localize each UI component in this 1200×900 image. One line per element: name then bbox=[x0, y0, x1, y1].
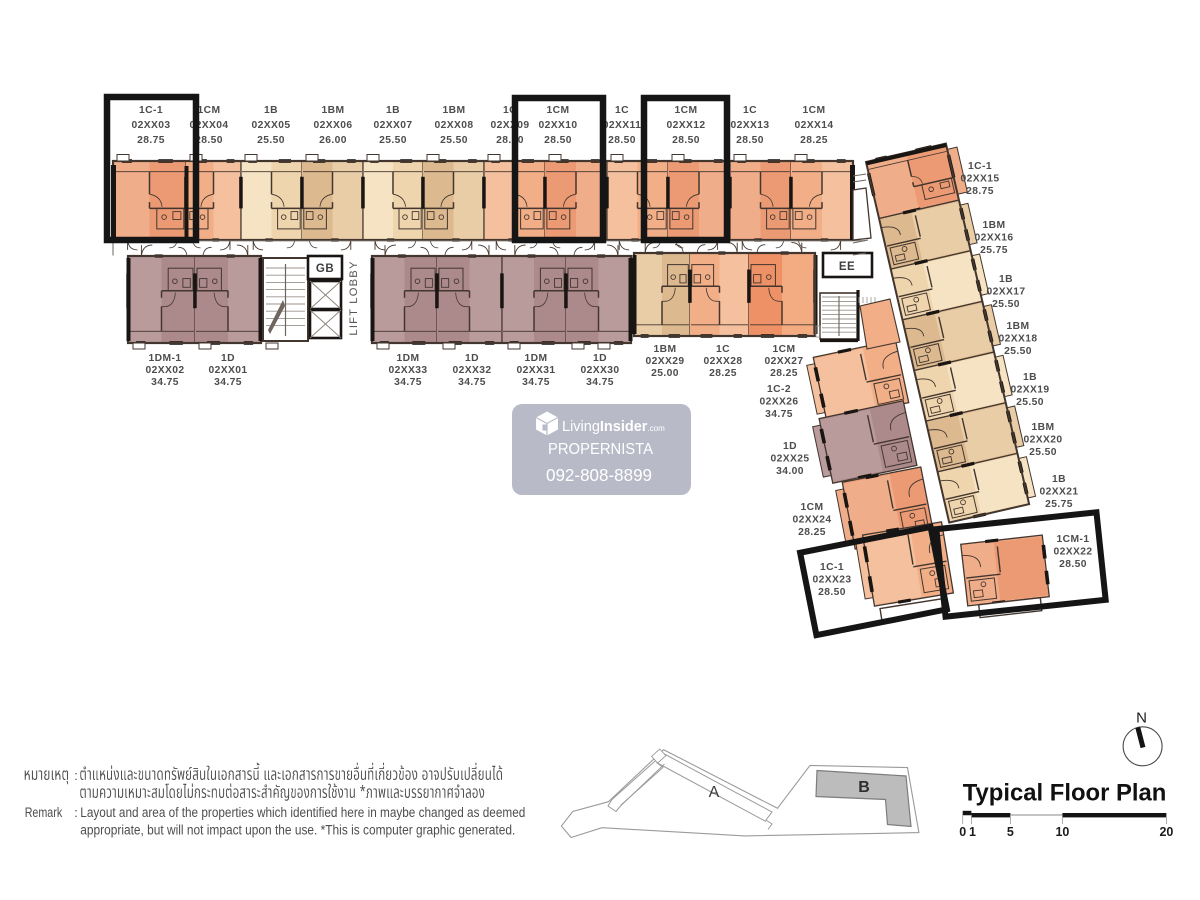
svg-text:1CM: 1CM bbox=[675, 105, 698, 116]
svg-text:25.00: 25.00 bbox=[651, 368, 679, 379]
svg-text:1D: 1D bbox=[221, 353, 235, 364]
svg-text::: : bbox=[74, 768, 78, 783]
svg-text:02XX29: 02XX29 bbox=[645, 356, 684, 367]
svg-text:1BM: 1BM bbox=[1032, 422, 1055, 433]
svg-text:02XX02: 02XX02 bbox=[145, 365, 184, 376]
svg-text:02XX22: 02XX22 bbox=[1053, 547, 1092, 558]
svg-text:02XX09: 02XX09 bbox=[490, 120, 529, 131]
svg-text:GB: GB bbox=[316, 263, 334, 275]
svg-text:34.75: 34.75 bbox=[151, 377, 179, 388]
svg-text:PROPERNISTA: PROPERNISTA bbox=[548, 441, 654, 458]
svg-text:5: 5 bbox=[1007, 825, 1014, 839]
svg-text:02XX15: 02XX15 bbox=[960, 174, 999, 185]
svg-text:34.75: 34.75 bbox=[214, 377, 242, 388]
svg-text:1CM: 1CM bbox=[773, 344, 796, 355]
svg-text:Layout and area of the propert: Layout and area of the properties which … bbox=[80, 805, 525, 820]
svg-text:28.50: 28.50 bbox=[1059, 559, 1087, 570]
svg-text:02XX17: 02XX17 bbox=[986, 287, 1025, 298]
svg-text:1: 1 bbox=[969, 825, 976, 839]
svg-text:34.75: 34.75 bbox=[586, 377, 614, 388]
svg-text:1CM-1: 1CM-1 bbox=[1057, 534, 1090, 545]
svg-text:1BM: 1BM bbox=[983, 220, 1006, 231]
svg-text:28.75: 28.75 bbox=[966, 186, 994, 197]
svg-text:1DM-1: 1DM-1 bbox=[149, 353, 182, 364]
svg-text:28.50: 28.50 bbox=[736, 135, 764, 146]
svg-text:02XX01: 02XX01 bbox=[208, 365, 247, 376]
svg-text:02XX24: 02XX24 bbox=[792, 515, 831, 526]
svg-text:1CM: 1CM bbox=[801, 502, 824, 513]
svg-text:1C-1: 1C-1 bbox=[968, 161, 992, 172]
svg-text:02XX33: 02XX33 bbox=[388, 365, 427, 376]
svg-text:25.50: 25.50 bbox=[1029, 447, 1057, 458]
svg-text:1C-2: 1C-2 bbox=[767, 384, 791, 395]
svg-text:02XX26: 02XX26 bbox=[759, 397, 798, 408]
svg-text:1BM: 1BM bbox=[322, 105, 345, 116]
svg-text:25.75: 25.75 bbox=[1045, 499, 1073, 510]
svg-text:02XX18: 02XX18 bbox=[998, 334, 1037, 345]
svg-text:1BM: 1BM bbox=[1007, 321, 1030, 332]
svg-text:1C: 1C bbox=[743, 105, 757, 116]
svg-text:02XX06: 02XX06 bbox=[313, 120, 352, 131]
svg-text:02XX13: 02XX13 bbox=[730, 120, 769, 131]
svg-text:1C-1: 1C-1 bbox=[820, 562, 844, 573]
svg-text:LIFT LOBBY: LIFT LOBBY bbox=[348, 260, 360, 335]
svg-text:1D: 1D bbox=[593, 353, 607, 364]
svg-text:02XX16: 02XX16 bbox=[974, 233, 1013, 244]
svg-text:25.50: 25.50 bbox=[1016, 397, 1044, 408]
svg-text:Typical Floor Plan: Typical Floor Plan bbox=[963, 780, 1167, 807]
svg-text:02XX12: 02XX12 bbox=[666, 120, 705, 131]
svg-text:0: 0 bbox=[959, 825, 966, 839]
svg-text:28.75: 28.75 bbox=[137, 135, 165, 146]
svg-text:28.50: 28.50 bbox=[496, 135, 524, 146]
svg-text:28.50: 28.50 bbox=[544, 135, 572, 146]
svg-text:B: B bbox=[858, 779, 870, 796]
svg-text:1BM: 1BM bbox=[654, 344, 677, 355]
svg-text:28.50: 28.50 bbox=[818, 587, 846, 598]
svg-text:1CM: 1CM bbox=[198, 105, 221, 116]
svg-text:1DM: 1DM bbox=[397, 353, 420, 364]
svg-text:25.75: 25.75 bbox=[980, 245, 1008, 256]
svg-text:1CM: 1CM bbox=[803, 105, 826, 116]
svg-text:34.75: 34.75 bbox=[458, 377, 486, 388]
svg-text:34.00: 34.00 bbox=[776, 466, 804, 477]
svg-text:02XX23: 02XX23 bbox=[812, 575, 851, 586]
svg-text:25.50: 25.50 bbox=[379, 135, 407, 146]
svg-text:appropriate, but will not impa: appropriate, but will not impact upon th… bbox=[80, 823, 515, 838]
svg-text:02XX11: 02XX11 bbox=[603, 120, 641, 131]
svg-text:02XX28: 02XX28 bbox=[703, 356, 742, 367]
svg-text:02XX21: 02XX21 bbox=[1039, 487, 1078, 498]
svg-text:20: 20 bbox=[1159, 825, 1173, 839]
svg-text:02XX03: 02XX03 bbox=[131, 120, 170, 131]
svg-text:1C: 1C bbox=[716, 344, 730, 355]
svg-text:1B: 1B bbox=[999, 274, 1013, 285]
svg-text:02XX32: 02XX32 bbox=[452, 365, 491, 376]
svg-text:34.75: 34.75 bbox=[765, 409, 793, 420]
svg-text:02XX14: 02XX14 bbox=[794, 120, 833, 131]
svg-text:28.50: 28.50 bbox=[195, 135, 223, 146]
svg-text:02XX19: 02XX19 bbox=[1010, 385, 1049, 396]
svg-text:1D: 1D bbox=[465, 353, 479, 364]
svg-text:10: 10 bbox=[1055, 825, 1069, 839]
svg-text:02XX25: 02XX25 bbox=[770, 454, 809, 465]
svg-text:1B: 1B bbox=[386, 105, 400, 116]
svg-text:28.25: 28.25 bbox=[798, 527, 826, 538]
svg-text:25.50: 25.50 bbox=[1004, 346, 1032, 357]
svg-text:26.00: 26.00 bbox=[319, 135, 347, 146]
svg-text:02XX27: 02XX27 bbox=[764, 356, 803, 367]
svg-text:1B: 1B bbox=[264, 105, 278, 116]
svg-text:1CM: 1CM bbox=[547, 105, 570, 116]
svg-text:28.25: 28.25 bbox=[800, 135, 828, 146]
svg-text:25.50: 25.50 bbox=[257, 135, 285, 146]
svg-text:EE: EE bbox=[839, 261, 855, 273]
svg-text:1C-1: 1C-1 bbox=[139, 105, 163, 116]
svg-text:02XX31: 02XX31 bbox=[516, 365, 555, 376]
svg-text:1DM: 1DM bbox=[525, 353, 548, 364]
svg-text:25.50: 25.50 bbox=[440, 135, 468, 146]
svg-text:02XX07: 02XX07 bbox=[373, 120, 412, 131]
svg-text:34.75: 34.75 bbox=[394, 377, 422, 388]
svg-text::: : bbox=[74, 805, 78, 820]
svg-text:02XX05: 02XX05 bbox=[251, 120, 290, 131]
svg-text:1B: 1B bbox=[1023, 372, 1037, 383]
svg-text:092-808-8899: 092-808-8899 bbox=[546, 465, 652, 485]
svg-text:34.75: 34.75 bbox=[522, 377, 550, 388]
svg-text:28.25: 28.25 bbox=[770, 368, 798, 379]
svg-text:28.25: 28.25 bbox=[709, 368, 737, 379]
svg-text:1C: 1C bbox=[615, 105, 629, 116]
svg-text:1BM: 1BM bbox=[443, 105, 466, 116]
svg-text:02XX10: 02XX10 bbox=[538, 120, 577, 131]
svg-text:A: A bbox=[709, 784, 720, 801]
svg-text:28.50: 28.50 bbox=[672, 135, 700, 146]
svg-text:25.50: 25.50 bbox=[992, 299, 1020, 310]
svg-text:28.50: 28.50 bbox=[608, 135, 636, 146]
svg-text:1B: 1B bbox=[1052, 474, 1066, 485]
svg-text:N: N bbox=[1136, 710, 1147, 727]
svg-text:1D: 1D bbox=[783, 441, 797, 452]
svg-text:02XX30: 02XX30 bbox=[580, 365, 619, 376]
svg-text:02XX08: 02XX08 bbox=[434, 120, 473, 131]
svg-text:Remark: Remark bbox=[25, 805, 63, 820]
svg-text:02XX20: 02XX20 bbox=[1023, 435, 1062, 446]
